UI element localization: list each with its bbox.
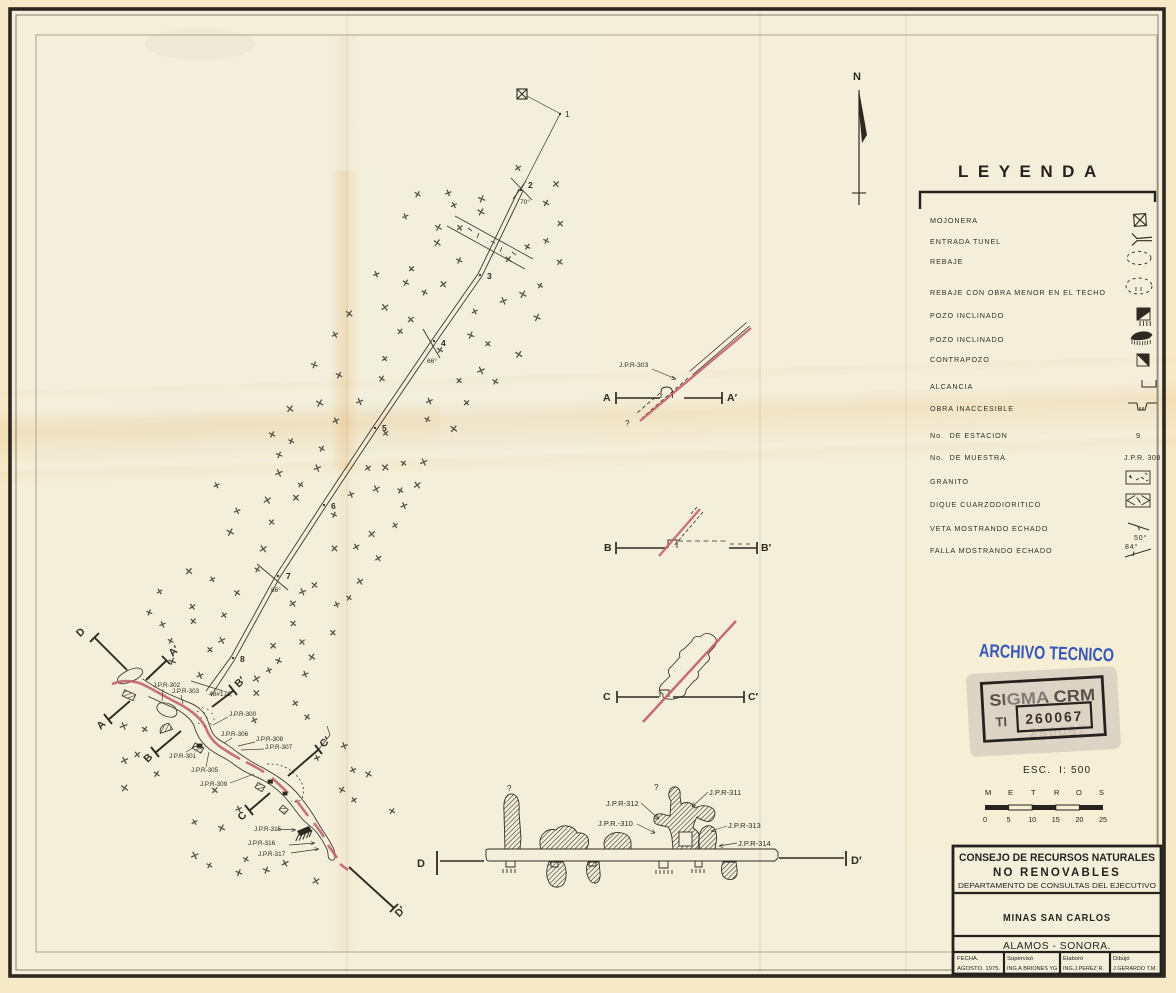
svg-text:J.P.R-305: J.P.R-305: [191, 767, 219, 774]
svg-text:ING.A BRIONES YG: ING.A BRIONES YG: [1007, 966, 1057, 972]
svg-text:Elaboró: Elaboró: [1063, 956, 1084, 962]
svg-text:T: T: [1031, 788, 1036, 797]
svg-text:ENTRADA TUNEL: ENTRADA TUNEL: [930, 237, 1001, 246]
svg-text:E: E: [1008, 788, 1013, 797]
svg-text:VETA MOSTRANDO ECHADO: VETA MOSTRANDO ECHADO: [930, 524, 1048, 533]
svg-text:J.P.R.-310: J.P.R.-310: [598, 819, 633, 828]
svg-text:ESC. I: 500: ESC. I: 500: [1023, 765, 1091, 776]
svg-text:R: R: [1054, 788, 1060, 797]
svg-text:0: 0: [983, 815, 987, 824]
svg-text:A′: A′: [727, 392, 738, 404]
svg-text:ING.J.PEREZ R.: ING.J.PEREZ R.: [1063, 966, 1104, 972]
svg-text:7: 7: [286, 571, 291, 581]
svg-text:No. DE MUESTRA: No. DE MUESTRA: [930, 453, 1006, 462]
svg-text:8: 8: [240, 654, 245, 664]
svg-text:4: 4: [441, 338, 446, 348]
svg-text:ALCANCIA: ALCANCIA: [930, 382, 973, 391]
svg-text:J.P.R-316: J.P.R-316: [248, 840, 276, 847]
svg-text:J.P.R-317: J.P.R-317: [258, 851, 286, 858]
svg-text:FECHA.: FECHA.: [957, 956, 979, 962]
svg-text:J.P.R-309: J.P.R-309: [200, 781, 228, 788]
svg-text:No. DE ESTACION: No. DE ESTACION: [930, 431, 1008, 440]
svg-text:TI: TI: [995, 714, 1007, 730]
svg-text:O: O: [1076, 788, 1082, 797]
svg-text:LEYENDA: LEYENDA: [958, 162, 1106, 181]
svg-text:9: 9: [1136, 431, 1141, 440]
svg-text:DEPARTAMENTO DE CONSULTAS DEL: DEPARTAMENTO DE CONSULTAS DEL EJECUTIVO: [958, 881, 1156, 890]
svg-text:REBAJE: REBAJE: [930, 257, 963, 266]
svg-text:N: N: [853, 71, 861, 83]
svg-text:OBRA INACCESIBLE: OBRA INACCESIBLE: [930, 404, 1014, 413]
svg-text:J.P.R-308: J.P.R-308: [256, 736, 284, 743]
svg-text:C′: C′: [748, 691, 759, 703]
svg-text:CONTRAPOZO: CONTRAPOZO: [930, 355, 990, 364]
svg-text:86°: 86°: [271, 586, 281, 594]
svg-text:B: B: [604, 542, 612, 554]
svg-text:ALAMOS - SONORA.: ALAMOS - SONORA.: [1003, 941, 1111, 952]
svg-text:?: ?: [654, 783, 659, 792]
svg-text:J.P.R-307: J.P.R-307: [265, 744, 293, 751]
svg-text:Supervisó: Supervisó: [1007, 956, 1034, 962]
svg-text:Dibujó: Dibujó: [1113, 956, 1130, 962]
svg-text:D: D: [417, 858, 425, 870]
svg-text:POZO INCLINADO: POZO INCLINADO: [930, 335, 1004, 344]
svg-text:10: 10: [1028, 815, 1036, 824]
svg-text:B′: B′: [761, 542, 772, 554]
svg-text:J.P.R-301: J.P.R-301: [169, 753, 197, 760]
svg-text:5: 5: [1007, 815, 1011, 824]
svg-text:J.P.R. 308: J.P.R. 308: [1124, 453, 1161, 462]
svg-text:J.P.R-311: J.P.R-311: [709, 788, 741, 797]
svg-text:C: C: [603, 691, 611, 703]
svg-text:?: ?: [625, 419, 630, 428]
svg-text:REBAJE CON OBRA MENOR EN EL TE: REBAJE CON OBRA MENOR EN EL TECHO: [930, 288, 1106, 297]
svg-text:A: A: [603, 392, 611, 404]
svg-text:AGOSTO. 1975.: AGOSTO. 1975.: [957, 966, 1000, 972]
svg-text:J.P.R-312: J.P.R-312: [606, 799, 639, 808]
svg-text:NO RENOVABLES: NO RENOVABLES: [993, 867, 1121, 879]
svg-text:2: 2: [528, 180, 533, 190]
svg-text:MOJONERA: MOJONERA: [930, 216, 978, 225]
svg-text:POZO INCLINADO: POZO INCLINADO: [930, 311, 1004, 320]
svg-text:15: 15: [1052, 815, 1060, 824]
svg-text:20: 20: [1075, 815, 1083, 824]
svg-text:84°: 84°: [1125, 543, 1138, 551]
svg-text:FALLA MOSTRANDO ECHADO: FALLA MOSTRANDO ECHADO: [930, 546, 1052, 555]
svg-text:M: M: [985, 788, 991, 797]
svg-text:25: 25: [1099, 815, 1107, 824]
svg-text:MINAS SAN CARLOS: MINAS SAN CARLOS: [1003, 913, 1111, 924]
svg-text:DIQUE CUARZODIORITICO: DIQUE CUARZODIORITICO: [930, 500, 1041, 509]
svg-text:D′: D′: [851, 855, 862, 867]
svg-text:J.P.R-303: J.P.R-303: [172, 688, 200, 695]
svg-text:J.P.R-313: J.P.R-313: [728, 821, 761, 830]
svg-text:CONSEJO DE RECURSOS NATURALES: CONSEJO DE RECURSOS NATURALES: [959, 852, 1155, 864]
svg-text:1: 1: [565, 110, 570, 119]
svg-text:66°: 66°: [427, 357, 437, 365]
svg-text:J GERARDO T.M.: J GERARDO T.M.: [1113, 966, 1157, 972]
svg-text:?: ?: [507, 784, 512, 793]
svg-text:J.P.R-314: J.P.R-314: [738, 839, 771, 848]
svg-text:260067: 260067: [1025, 708, 1084, 727]
svg-text:3: 3: [487, 271, 492, 281]
svg-text:6: 6: [331, 501, 336, 511]
svg-text:J.P.R-300: J.P.R-300: [229, 711, 257, 718]
svg-text:GRANITO: GRANITO: [930, 477, 969, 486]
svg-text:50°: 50°: [1134, 534, 1147, 542]
svg-text:S: S: [1099, 788, 1104, 797]
svg-text:J.P.R-315: J.P.R-315: [254, 826, 282, 833]
svg-text:J.P.R-306: J.P.R-306: [221, 731, 249, 738]
svg-text:70°: 70°: [520, 198, 530, 206]
svg-text:J.P.R-303: J.P.R-303: [619, 362, 649, 369]
